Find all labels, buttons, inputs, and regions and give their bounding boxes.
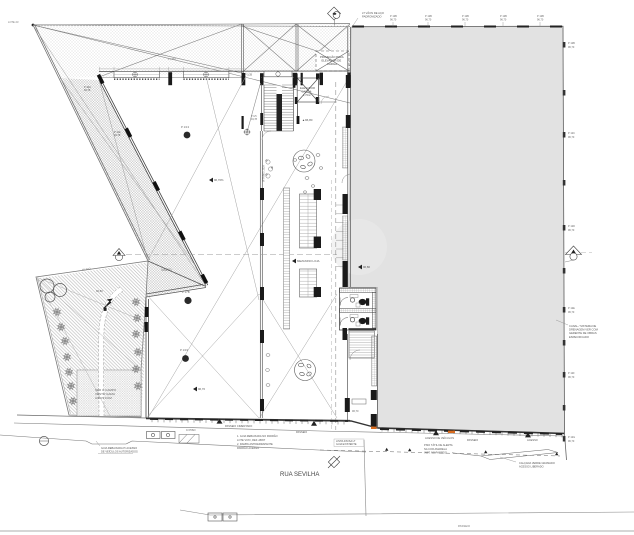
svg-text:CALÇADA VERDE GRAMADO: CALÇADA VERDE GRAMADO (519, 461, 555, 465)
svg-text:P 1/13: P 1/13 (181, 125, 189, 129)
svg-text:94,78: 94,78 (251, 118, 258, 121)
svg-text:P 12F: P 12F (568, 372, 575, 375)
svg-text:C/ PISO: C/ PISO (186, 428, 196, 432)
svg-text:96,70: 96,70 (198, 387, 205, 391)
svg-text:2. RAMPA ANTIDERRAPANTE: 2. RAMPA ANTIDERRAPANTE (237, 442, 273, 446)
svg-text:96,70: 96,70 (537, 19, 544, 22)
svg-text:96,70: 96,70 (568, 136, 575, 139)
svg-text:P 12B: P 12B (568, 42, 575, 45)
svg-text:MEZANINO LOJA: MEZANINO LOJA (297, 259, 320, 263)
svg-text:ESPECIFICADO: ESPECIFICADO (569, 335, 589, 339)
svg-text:P 1/19: P 1/19 (180, 348, 188, 352)
svg-text:1,70m²: 1,70m² (303, 93, 311, 97)
svg-text:GUIA REBAIXADA P/ ACESSO: GUIA REBAIXADA P/ ACESSO (101, 446, 137, 450)
svg-text:CANAL / SISTEMA DE: CANAL / SISTEMA DE (569, 324, 596, 328)
svg-text:ACESSO LIBERADO: ACESSO LIBERADO (519, 465, 544, 469)
svg-text:PADRONIZADO: PADRONIZADO (362, 15, 382, 19)
svg-text:P 12D: P 12D (568, 225, 575, 228)
svg-text:▲96,80: ▲96,80 (302, 118, 313, 122)
svg-text:VAZIO: VAZIO (161, 268, 172, 272)
svg-text:VITRINE LOJA: VITRINE LOJA (263, 165, 266, 182)
svg-text:P 12C: P 12C (568, 132, 575, 135)
svg-text:GUIA EXISTENTE: GUIA EXISTENTE (336, 443, 357, 446)
svg-text:96,80: 96,80 (96, 289, 103, 293)
svg-text:96,70: 96,70 (500, 19, 507, 22)
svg-text:P 1/2B: P 1/2B (245, 74, 253, 77)
svg-text:CARGA: CARGA (302, 89, 312, 93)
svg-text:96,70: 96,70 (568, 229, 575, 232)
svg-text:96,70: 96,70 (568, 376, 575, 379)
svg-text:NA COR AMARELA: NA COR AMARELA (424, 447, 447, 451)
svg-text:96,70: 96,70 (568, 46, 575, 49)
svg-text:PASSEIO: PASSEIO (296, 430, 307, 434)
svg-text:96,80: 96,80 (363, 265, 370, 269)
svg-text:LOTE VIVO, REF. ABNT: LOTE VIVO, REF. ABNT (237, 438, 266, 442)
svg-text:CARGA: CARGA (327, 62, 337, 66)
svg-text:1,N50: 1,N50 (168, 57, 176, 61)
svg-text:RUA SEVILHA: RUA SEVILHA (280, 472, 319, 478)
svg-text:AIRUS KIOZ: AIRUS KIOZ (95, 396, 112, 400)
svg-text:DE VEÍCULOS AUTORIZADOS: DE VEÍCULOS AUTORIZADOS (101, 450, 138, 454)
svg-text:96,70%: 96,70% (214, 178, 224, 182)
svg-text:PISO TÁTIL DE ALERTA: PISO TÁTIL DE ALERTA (424, 443, 453, 447)
svg-text:DRENAGEM VER COM: DRENAGEM VER COM (569, 328, 599, 332)
svg-text:94,78: 94,78 (114, 134, 121, 137)
svg-text:GERENTE DE OBRAS: GERENTE DE OBRAS (569, 331, 597, 335)
svg-text:INST. NO PASSEIO: INST. NO PASSEIO (424, 451, 447, 455)
svg-text:96,70: 96,70 (352, 409, 359, 413)
svg-text:PASSEIO: PASSEIO (467, 438, 478, 442)
svg-text:P 12G: P 12G (568, 436, 575, 439)
svg-text:ACESSO: ACESSO (527, 438, 538, 442)
svg-text:PASSEIO: PASSEIO (458, 524, 471, 528)
svg-text:96,70: 96,70 (462, 19, 469, 22)
svg-text:96,70: 96,70 (568, 440, 575, 443)
svg-text:PASSEIO CIMENTADO: PASSEIO CIMENTADO (225, 424, 252, 428)
svg-text:96,70: 96,70 (390, 19, 397, 22)
svg-text:94,78: 94,78 (84, 89, 91, 92)
svg-text:ACESSO DE VEÍCULOS: ACESSO DE VEÍCULOS (425, 436, 454, 440)
svg-text:P 17B: P 17B (182, 290, 190, 294)
svg-text:96,70: 96,70 (425, 19, 432, 22)
svg-text:96,70: 96,70 (568, 311, 575, 314)
svg-text:LOTE 23: LOTE 23 (8, 20, 19, 24)
svg-text:P 12E: P 12E (568, 307, 575, 310)
